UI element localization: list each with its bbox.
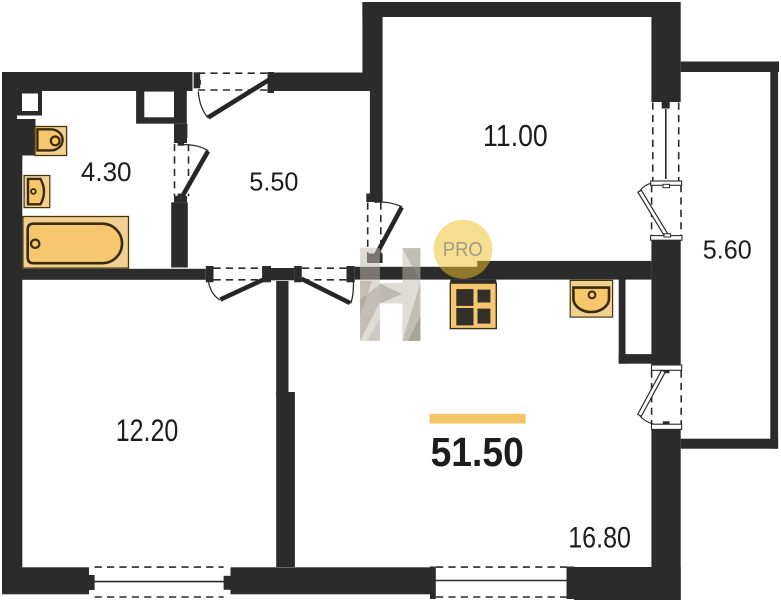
svg-text:5.50: 5.50 xyxy=(249,167,298,197)
svg-text:12.20: 12.20 xyxy=(116,412,179,448)
svg-text:11.00: 11.00 xyxy=(483,118,548,153)
svg-text:16.80: 16.80 xyxy=(568,521,631,554)
svg-text:PRO: PRO xyxy=(443,238,483,261)
svg-text:51.50: 51.50 xyxy=(431,429,524,475)
svg-text:5.60: 5.60 xyxy=(703,235,752,265)
svg-text:4.30: 4.30 xyxy=(81,157,132,187)
